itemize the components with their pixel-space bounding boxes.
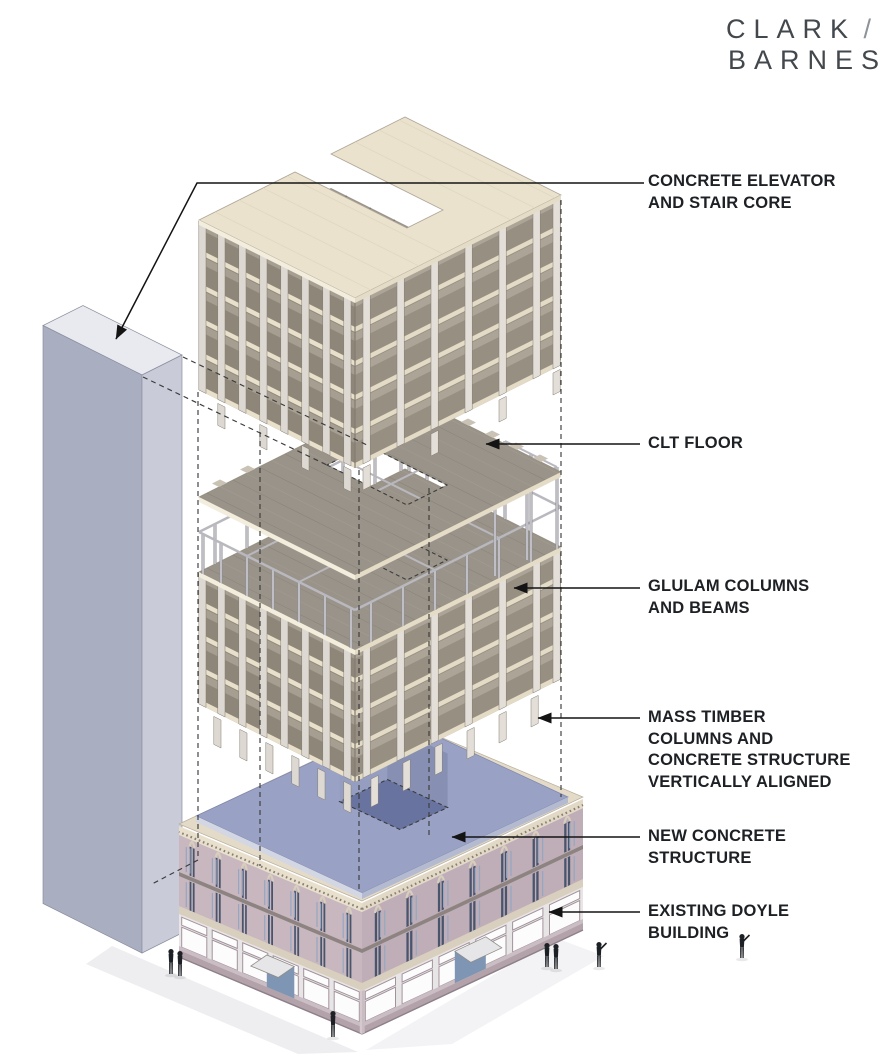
- callout-glulam-columns-beams: GLULAM COLUMNS AND BEAMS: [648, 576, 809, 619]
- brand-logo: CLARK / BARNES: [726, 14, 879, 76]
- callout-existing-doyle-building: EXISTING DOYLE BUILDING: [648, 901, 789, 944]
- callout-clt-floor: CLT FLOOR: [648, 433, 743, 455]
- brand-line2: BARNES: [726, 45, 879, 76]
- concrete-core: [43, 306, 182, 954]
- callout-new-concrete-structure: NEW CONCRETE STRUCTURE: [648, 826, 786, 869]
- callout-mass-timber-alignment: MASS TIMBER COLUMNS AND CONCRETE STRUCTU…: [648, 707, 851, 793]
- upper-timber-block: [199, 117, 561, 492]
- brand-line1: CLARK /: [726, 14, 879, 45]
- brand-slash: /: [848, 14, 879, 44]
- callout-concrete-elevator-core: CONCRETE ELEVATOR AND STAIR CORE: [648, 171, 836, 214]
- exploded-axonometric-diagram: [0, 0, 887, 1057]
